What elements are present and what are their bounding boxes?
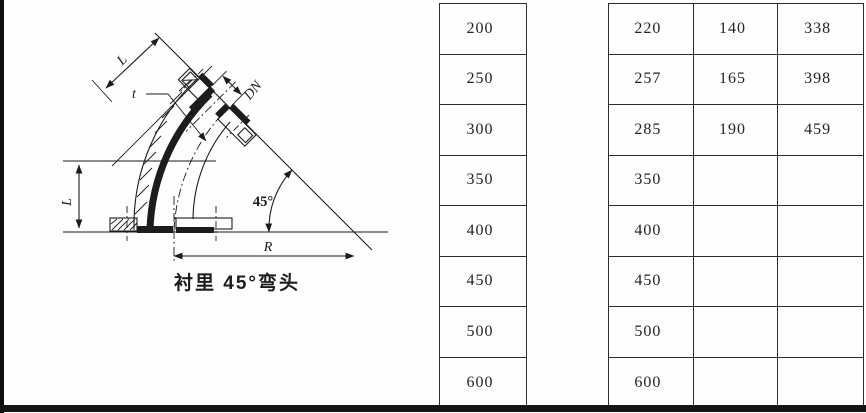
table-cell: 200 — [440, 4, 526, 55]
extension-tick — [92, 80, 112, 102]
face-plane-diagonal — [155, 33, 372, 250]
table-cell — [778, 257, 863, 308]
dim-label-nominal-diameter: DN — [241, 78, 266, 104]
table-cell: 450 — [440, 257, 526, 308]
upper-flange — [156, 51, 273, 168]
dim-label-length-left: L — [60, 198, 75, 207]
dn-column: 200250300350400450500600 — [439, 3, 527, 409]
inner-wall-arc — [193, 122, 230, 219]
figure-caption: 衬里 45°弯头 — [174, 271, 300, 294]
table-cell — [694, 257, 779, 308]
table-cell: 400 — [609, 206, 694, 257]
dim-line-DN — [223, 76, 241, 94]
table-cell: 300 — [440, 105, 526, 156]
table-cell: 400 — [440, 206, 526, 257]
table-cell: 190 — [694, 105, 779, 156]
table-cell — [778, 358, 863, 409]
dim-label-thickness: t — [132, 87, 137, 102]
page-bottom-border — [0, 405, 866, 412]
table-cell — [694, 307, 779, 358]
table-cell: 600 — [609, 358, 694, 409]
table-cell — [694, 358, 779, 409]
table-cell — [778, 206, 863, 257]
table-cell: 350 — [440, 156, 526, 207]
table-cell: 500 — [440, 307, 526, 358]
elbow-figure: L t DN L 45° R 衬里 45°弯头 — [0, 0, 433, 413]
table-cell — [778, 156, 863, 207]
shell-hatching — [135, 80, 191, 214]
scanned-document-page: L t DN L 45° R 衬里 45°弯头 2002503003504004… — [0, 0, 866, 413]
table-cell: 500 — [609, 307, 694, 358]
table-cell: 450 — [609, 257, 694, 308]
table-cell: 140 — [694, 4, 779, 55]
table-cell: 350 — [609, 156, 694, 207]
table-cell — [694, 156, 779, 207]
table-cell: 600 — [440, 358, 526, 409]
table-cell: 285 — [609, 105, 694, 156]
table-cell: 220 — [609, 4, 694, 55]
table-cell: 459 — [778, 105, 863, 156]
table-cell: 257 — [609, 55, 694, 106]
table-cell: 338 — [778, 4, 863, 55]
page-left-border — [0, 0, 4, 413]
table-cell: 398 — [778, 55, 863, 106]
dim-line-L-top — [106, 38, 159, 88]
table-cell: 250 — [440, 55, 526, 106]
dim-label-angle: 45° — [253, 194, 274, 210]
table-cell — [694, 206, 779, 257]
elbow-technical-drawing: L t DN L 45° R 衬里 45°弯头 — [0, 0, 433, 413]
bottom-flange — [110, 206, 232, 241]
dim-label-radius: R — [263, 240, 273, 255]
dims-table: 2201403382571653982851904593504004505006… — [608, 3, 864, 409]
table-cell — [778, 307, 863, 358]
table-cell: 165 — [694, 55, 779, 106]
